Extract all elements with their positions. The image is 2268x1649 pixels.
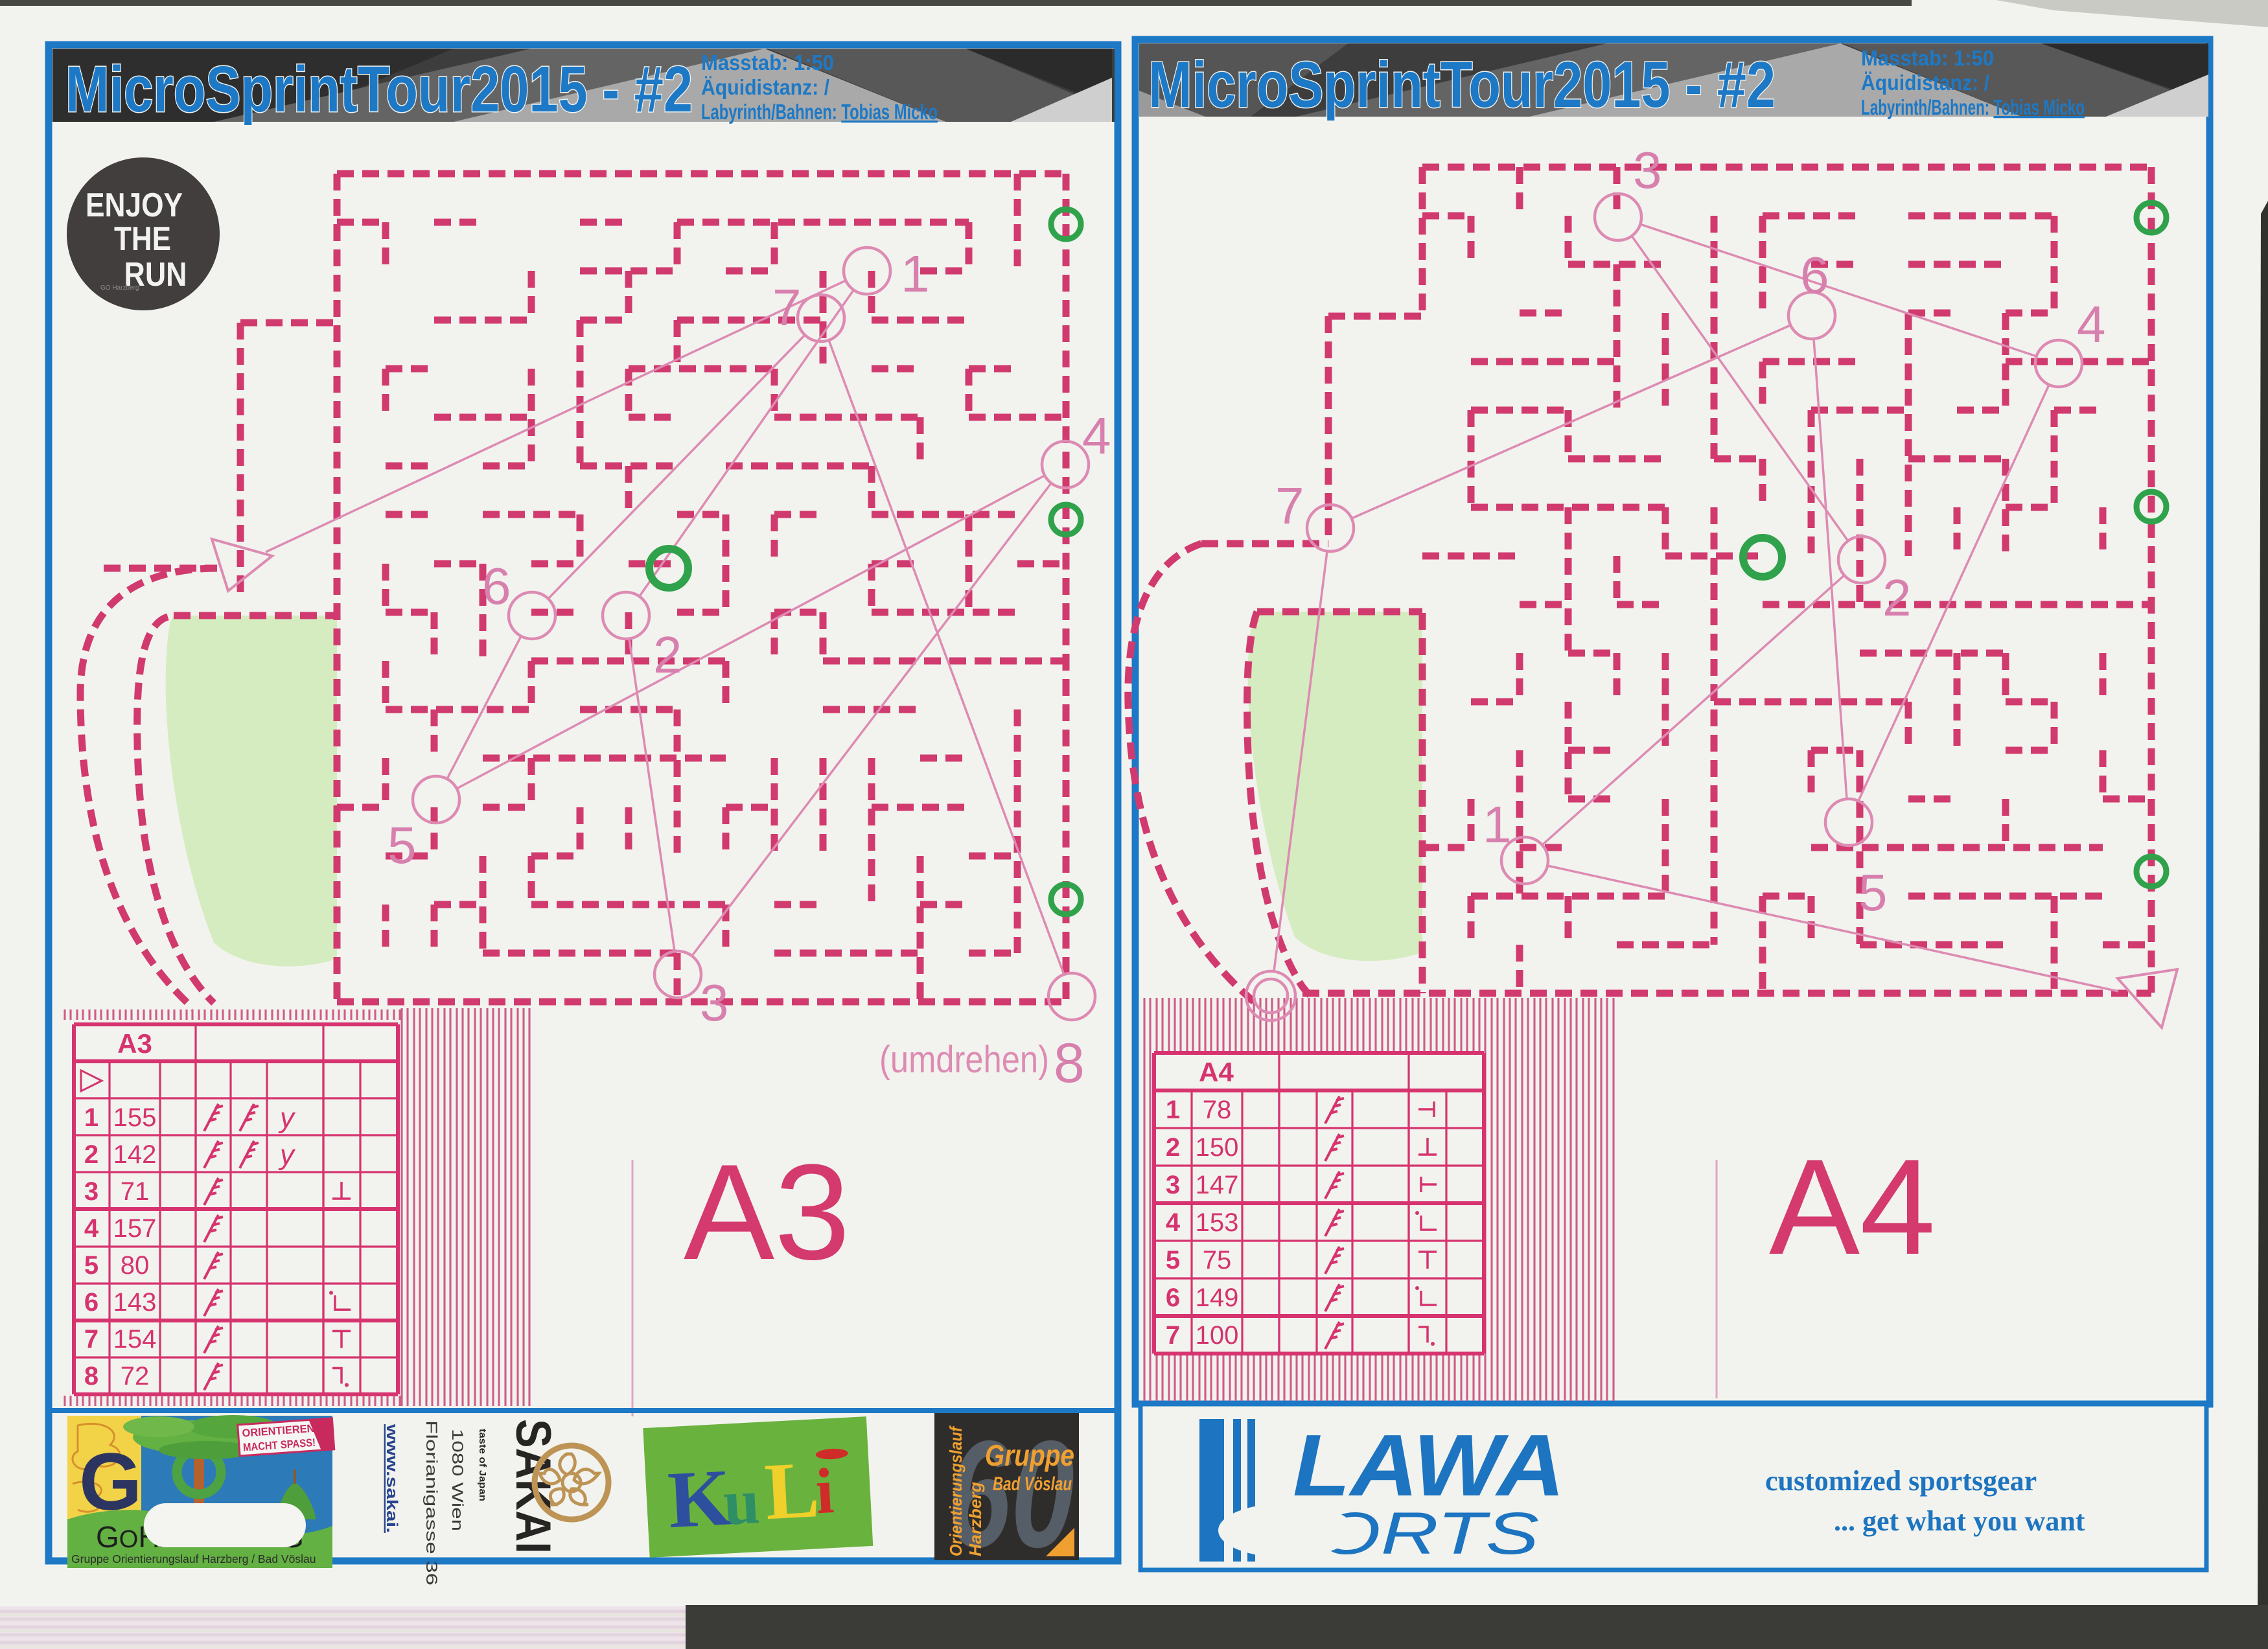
svg-text:(umdrehen): (umdrehen) xyxy=(879,1039,1049,1081)
svg-text:3: 3 xyxy=(1633,141,1662,199)
svg-text:155: 155 xyxy=(113,1103,157,1132)
svg-text:4: 4 xyxy=(84,1214,99,1243)
svg-text:u: u xyxy=(722,1465,761,1539)
svg-text:5: 5 xyxy=(1858,864,1888,921)
svg-text:MicroSprintTour2015 - #2: MicroSprintTour2015 - #2 xyxy=(65,53,693,126)
svg-text:7: 7 xyxy=(772,279,802,336)
svg-text:G: G xyxy=(79,1437,142,1527)
svg-text:4: 4 xyxy=(1082,407,1111,465)
svg-text:2: 2 xyxy=(84,1140,98,1169)
svg-text:6: 6 xyxy=(84,1288,98,1317)
svg-text:Florianigasse 36: Florianigasse 36 xyxy=(422,1420,440,1586)
svg-text:A3: A3 xyxy=(684,1136,850,1288)
svg-text:L: L xyxy=(763,1445,821,1537)
svg-text:4: 4 xyxy=(2077,295,2106,353)
svg-text:1080 Wien: 1080 Wien xyxy=(448,1429,466,1531)
svg-text:6: 6 xyxy=(1166,1284,1180,1312)
svg-text:72: 72 xyxy=(121,1362,150,1390)
svg-text:Masstab: 1:50: Masstab: 1:50 xyxy=(701,51,834,75)
svg-text:y: y xyxy=(278,1102,296,1134)
svg-text:Labyrinth/Bahnen: Tobias Micko: Labyrinth/Bahnen: Tobias Micko xyxy=(701,100,938,124)
svg-text:taste of Japan: taste of Japan xyxy=(477,1429,488,1501)
svg-text:5: 5 xyxy=(1166,1246,1180,1274)
svg-text:4: 4 xyxy=(1166,1208,1181,1237)
svg-text:Labyrinth/Bahnen: Tobias Micko: Labyrinth/Bahnen: Tobias Micko xyxy=(1861,95,2085,119)
svg-text:Gruppe Orientierungslauf Harzb: Gruppe Orientierungslauf Harzberg / Bad … xyxy=(71,1552,316,1565)
svg-text:3: 3 xyxy=(1166,1171,1180,1199)
svg-text:157: 157 xyxy=(113,1214,157,1243)
svg-text:... get what you want: ... get what you want xyxy=(1834,1505,2085,1537)
svg-text:3: 3 xyxy=(700,974,729,1032)
svg-text:A3: A3 xyxy=(117,1028,152,1059)
svg-text:LAWA: LAWA xyxy=(1293,1416,1565,1514)
svg-text:149: 149 xyxy=(1196,1284,1239,1312)
svg-text:www.sakai.: www.sakai. xyxy=(383,1424,400,1533)
svg-text:Äquidistanz: /: Äquidistanz: / xyxy=(1861,71,1989,95)
svg-text:A4: A4 xyxy=(1769,1131,1936,1283)
svg-text:2: 2 xyxy=(653,626,682,684)
svg-text:1: 1 xyxy=(1483,796,1512,853)
svg-text:A4: A4 xyxy=(1199,1057,1234,1087)
svg-text:7: 7 xyxy=(84,1325,98,1354)
svg-text:Masstab: 1:50: Masstab: 1:50 xyxy=(1861,46,1994,70)
svg-text:y: y xyxy=(278,1139,296,1171)
svg-text:customized sportsgear: customized sportsgear xyxy=(1765,1465,2037,1497)
svg-text:3: 3 xyxy=(84,1177,98,1206)
svg-text:71: 71 xyxy=(121,1177,150,1206)
svg-text:8: 8 xyxy=(84,1362,98,1390)
svg-text:5: 5 xyxy=(84,1251,98,1280)
svg-text:154: 154 xyxy=(113,1325,157,1354)
svg-text:143: 143 xyxy=(113,1288,157,1317)
svg-text:1: 1 xyxy=(84,1103,98,1132)
svg-text:5: 5 xyxy=(388,816,417,874)
svg-text:2: 2 xyxy=(1882,569,1912,627)
svg-text:Harzberg: Harzberg xyxy=(966,1482,985,1556)
svg-text:142: 142 xyxy=(113,1140,157,1169)
svg-text:i: i xyxy=(814,1455,836,1527)
svg-text:7: 7 xyxy=(1166,1321,1180,1350)
svg-text:1: 1 xyxy=(1166,1096,1180,1124)
svg-text:7: 7 xyxy=(1275,477,1304,535)
svg-text:GO Harzberg: GO Harzberg xyxy=(100,284,139,292)
svg-text:Äquidistanz: /: Äquidistanz: / xyxy=(701,75,829,99)
svg-text:MicroSprintTour2015 - #2: MicroSprintTour2015 - #2 xyxy=(1148,49,1776,121)
svg-text:153: 153 xyxy=(1196,1208,1239,1237)
svg-text:6: 6 xyxy=(482,557,511,615)
svg-text:Bad Vöslau: Bad Vöslau xyxy=(993,1473,1072,1495)
svg-text:6: 6 xyxy=(1800,246,1829,304)
svg-text:8: 8 xyxy=(1054,1032,1085,1094)
svg-text:100: 100 xyxy=(1196,1321,1239,1350)
svg-text:1: 1 xyxy=(901,245,930,303)
svg-text:75: 75 xyxy=(1203,1246,1232,1274)
svg-text:2: 2 xyxy=(1166,1133,1180,1162)
svg-text:Gruppe: Gruppe xyxy=(985,1438,1074,1472)
svg-text:78: 78 xyxy=(1203,1096,1232,1124)
svg-text:150: 150 xyxy=(1196,1133,1239,1162)
svg-text:THE: THE xyxy=(114,220,171,258)
svg-text:ENJOY: ENJOY xyxy=(86,187,183,224)
svg-text:80: 80 xyxy=(121,1251,150,1280)
svg-text:Orientierungslauf: Orientierungslauf xyxy=(946,1425,966,1556)
svg-text:147: 147 xyxy=(1196,1171,1239,1199)
